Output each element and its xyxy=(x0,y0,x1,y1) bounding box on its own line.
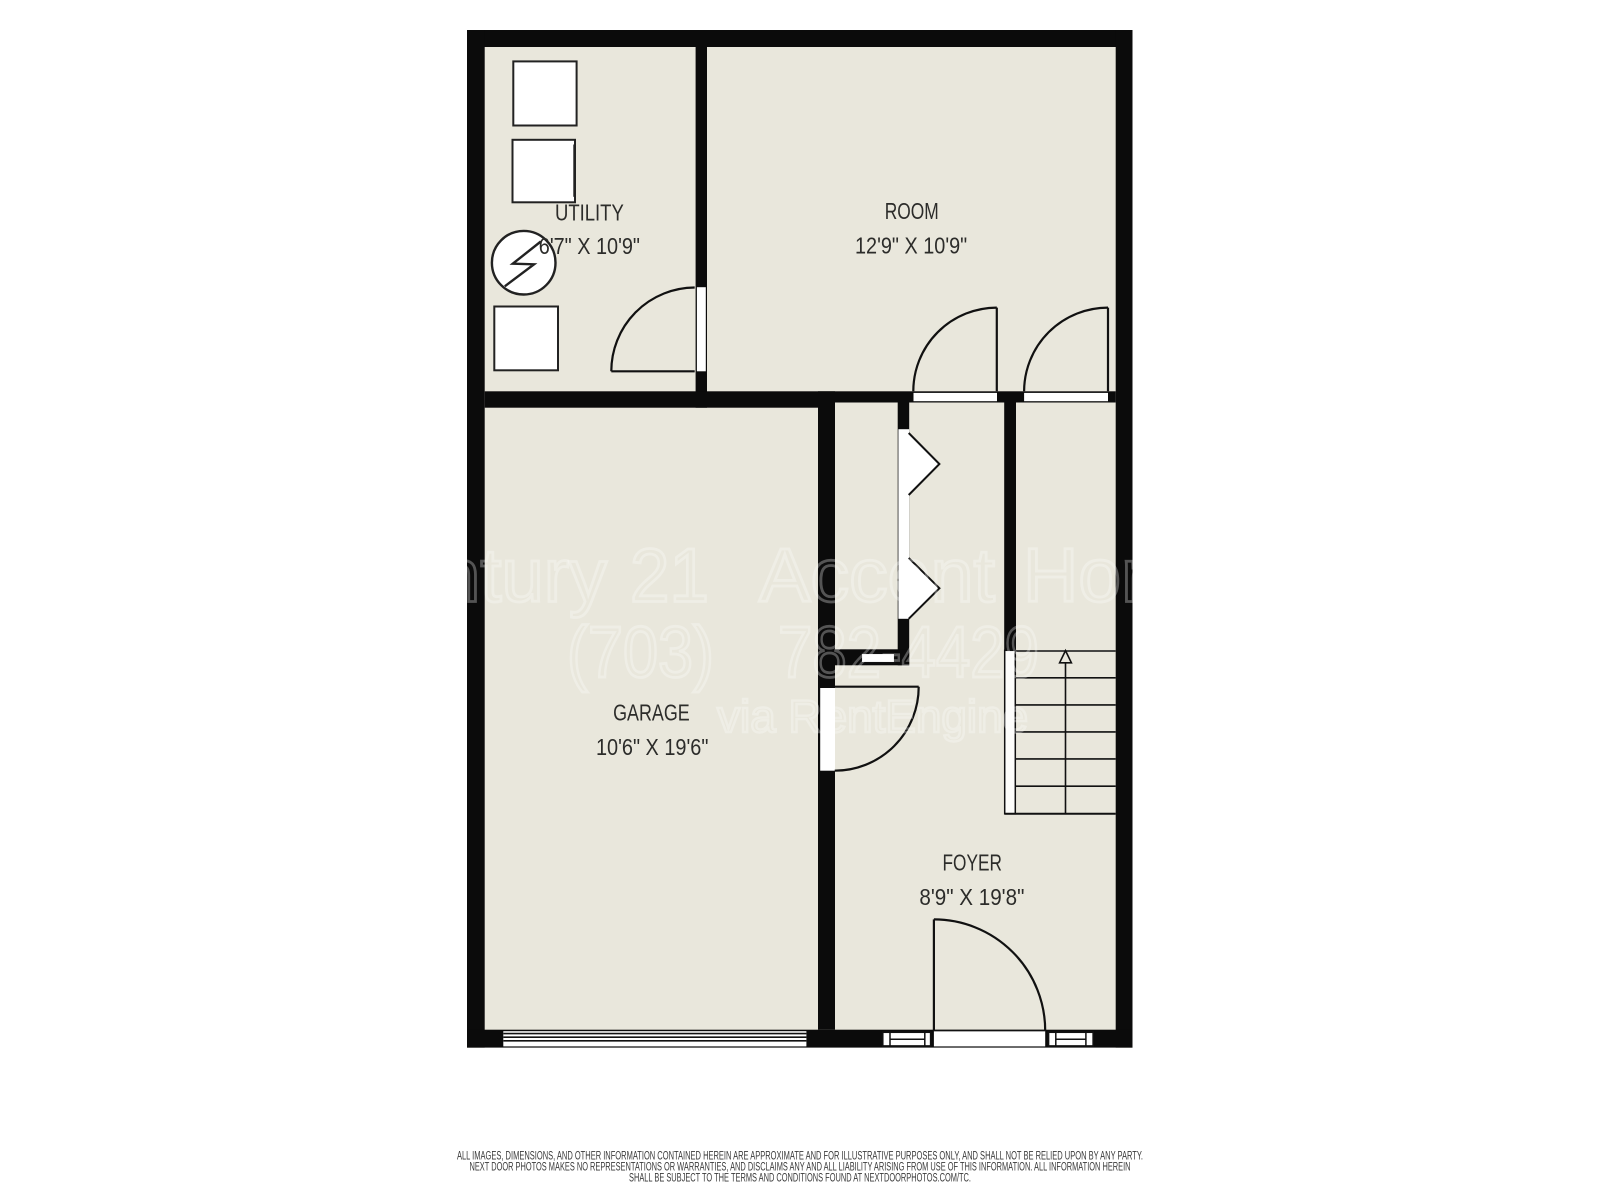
svg-text:8'9" X 19'8": 8'9" X 19'8" xyxy=(919,884,1024,910)
svg-text:Century21AccentHomes: Century21AccentHomes xyxy=(341,534,1266,619)
svg-text:ROOM: ROOM xyxy=(885,198,939,224)
svg-text:GARAGE: GARAGE xyxy=(613,700,690,726)
svg-text:(703)782-4429: (703)782-4429 xyxy=(567,612,1039,693)
svg-text:via RentEngine: via RentEngine xyxy=(717,691,1028,742)
svg-text:10'6" X 19'6": 10'6" X 19'6" xyxy=(596,734,709,760)
svg-text:6'7" X 10'9": 6'7" X 10'9" xyxy=(539,233,640,259)
svg-text:SHALL BE SUBJECT TO THE TERMS: SHALL BE SUBJECT TO THE TERMS AND CONDIT… xyxy=(629,1172,971,1184)
svg-text:FOYER: FOYER xyxy=(943,850,1002,876)
svg-text:UTILITY: UTILITY xyxy=(555,199,624,225)
svg-text:12'9" X 10'9": 12'9" X 10'9" xyxy=(855,233,967,259)
